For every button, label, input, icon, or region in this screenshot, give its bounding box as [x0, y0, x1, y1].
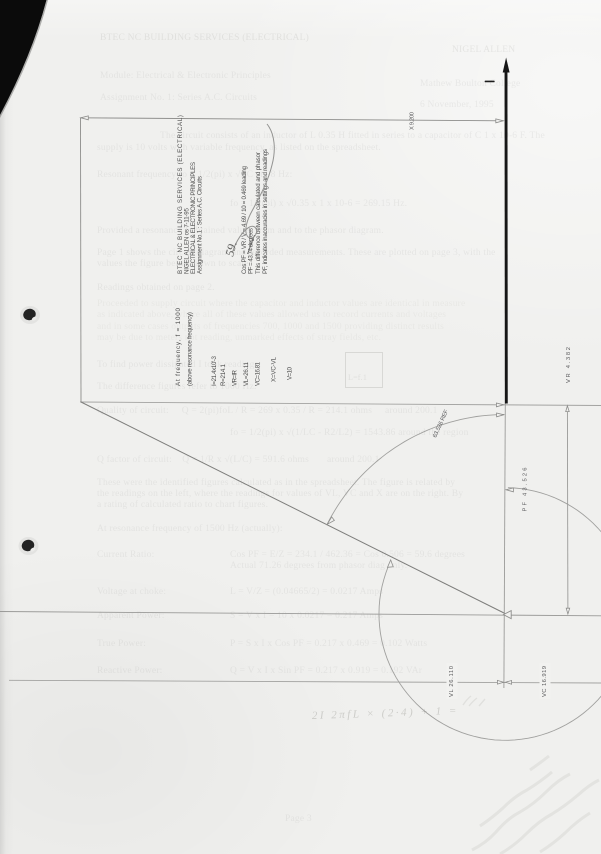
- svg-text:59.: 59.: [222, 240, 239, 258]
- svg-text:VC=16.81: VC=16.81: [255, 361, 262, 386]
- svg-text:Assignment No.1 : Series A.C.: Assignment No.1 : Series A.C. Circuits: [197, 176, 204, 274]
- svg-text:X=VC-VL: X=VC-VL: [271, 356, 278, 382]
- svg-text:PF, indicates inaccuracies in: PF, indicates inaccuracies in settings a…: [262, 149, 269, 274]
- svg-text:PF 43.526: PF 43.526: [523, 468, 529, 512]
- svg-text:VL=26.11: VL=26.11: [243, 361, 250, 386]
- svg-text:I=21.4x10'-3: I=21.4x10'-3: [211, 355, 218, 386]
- svg-text:X 9.200: X 9.200: [410, 112, 416, 130]
- svg-text:This difference between calcul: This difference between calculated and p…: [255, 152, 262, 274]
- svg-text:2I 2πfL × (2·4) + 1 =: 2I 2πfL × (2·4) + 1 =: [312, 705, 459, 722]
- svg-text:63.526 REF: 63.526 REF: [432, 409, 450, 439]
- svg-text:VR 4.382: VR 4.382: [566, 347, 572, 383]
- svg-text:At frequency, f = 1000: At frequency, f = 1000: [175, 307, 182, 386]
- svg-text:(above resonance frequency): (above resonance frequency): [187, 312, 194, 386]
- svg-text:V=10: V=10: [287, 366, 294, 380]
- svg-text:R=214.1: R=214.1: [220, 363, 227, 386]
- svg-text:VR=IR: VR=IR: [232, 369, 239, 386]
- svg-text:VC 16.919: VC 16.919: [542, 666, 548, 697]
- svg-text:VL 26.110: VL 26.110: [449, 666, 455, 697]
